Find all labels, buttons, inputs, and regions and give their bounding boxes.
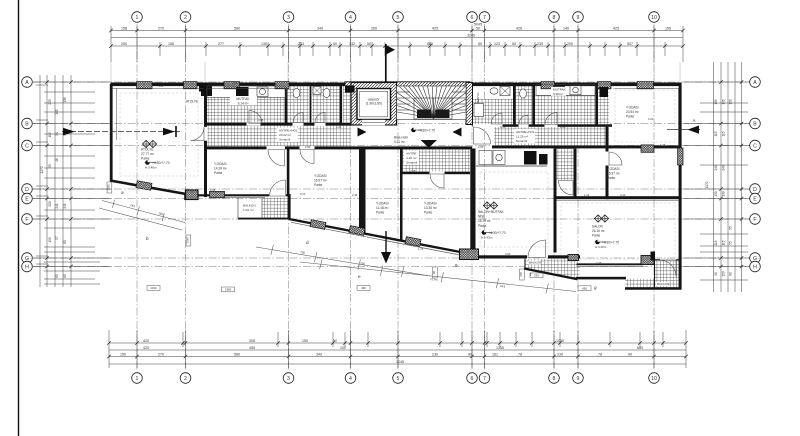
svg-text:C: C [25,143,29,149]
svg-text:94: 94 [55,132,59,136]
svg-text:Seramik: Seramik [406,161,418,165]
svg-text:115: 115 [48,132,52,137]
svg-text:4.90: 4.90 [505,252,511,256]
svg-text:235: 235 [48,99,52,105]
svg-text:3: 3 [287,15,290,21]
svg-text:5045: 5045 [474,23,482,27]
svg-text:+4.30/+7.70: +4.30/+7.70 [489,231,506,235]
svg-text:200: 200 [48,201,52,207]
svg-text:7: 7 [483,376,486,382]
svg-text:165: 165 [55,109,59,115]
svg-text:A: A [25,80,29,86]
svg-text:1470: 1470 [40,166,44,173]
svg-text:50: 50 [333,42,337,46]
svg-text:685: 685 [637,346,643,350]
svg-text:Y.ODASI: Y.ODASI [424,202,437,206]
svg-text:60: 60 [63,274,67,278]
svg-text:270: 270 [158,352,164,356]
svg-text:1170: 1170 [705,181,709,188]
svg-text:ANTRE: ANTRE [406,152,417,156]
svg-text:55: 55 [48,164,52,168]
svg-text:+4.30/+7.70: +4.30/+7.70 [152,161,170,165]
svg-text:1.75: 1.75 [418,247,424,251]
svg-text:16.97 m²: 16.97 m² [314,179,327,183]
svg-text:115: 115 [714,131,718,136]
svg-text:b: b [146,236,149,241]
svg-text:SALON+MUTFAK: SALON+MUTFAK [478,210,504,214]
svg-text:D: D [25,187,29,193]
svg-text:16.15 m²: 16.15 m² [478,219,491,223]
svg-text:50: 50 [476,26,480,30]
svg-text:2.50: 2.50 [305,145,311,149]
svg-text:3245: 3245 [467,33,475,37]
svg-text:Y.ODASI: Y.ODASI [607,167,620,171]
svg-text:150: 150 [48,237,52,243]
svg-text:250: 250 [121,42,127,46]
svg-text:Y.ODASI: Y.ODASI [626,106,639,110]
svg-text:BALKON: BALKON [243,204,256,208]
svg-text:MUTFAK: MUTFAK [237,97,251,101]
svg-text:Parke: Parke [314,183,323,187]
svg-text:1355: 1355 [496,346,504,350]
svg-text:161: 161 [492,352,498,356]
svg-text:Parke: Parke [626,115,635,119]
svg-text:1.20: 1.20 [336,125,342,129]
svg-text:2.80: 2.80 [430,81,436,85]
svg-text:Parke: Parke [478,224,487,228]
svg-text:H:3.40m: H:3.40m [145,166,157,170]
svg-text:8: 8 [553,15,556,21]
svg-text:2.10: 2.10 [522,145,528,149]
svg-text:ATÖLYE: ATÖLYE [186,100,198,104]
svg-text:50: 50 [512,42,516,46]
svg-text:9.31 m²: 9.31 m² [394,140,405,144]
svg-text:H: H [25,264,29,270]
svg-text:277: 277 [218,42,224,46]
svg-text:MUTFAK: MUTFAK [553,88,566,92]
svg-text:3: 3 [287,376,290,382]
svg-text:158: 158 [121,26,127,30]
svg-text:230: 230 [432,352,438,356]
svg-text:4.28 m²: 4.28 m² [406,156,417,160]
svg-text:308: 308 [249,339,255,343]
svg-text:140: 140 [563,26,569,30]
svg-text:9.14 m²: 9.14 m² [238,102,249,106]
svg-text:159: 159 [665,26,671,30]
svg-text:130: 130 [729,99,733,105]
svg-text:Parke: Parke [214,171,223,175]
svg-text:a: a [121,190,124,195]
svg-text:2: 2 [184,15,187,21]
svg-text:425: 425 [432,26,438,30]
svg-text:1: 1 [136,15,139,21]
svg-text:5: 5 [397,376,400,382]
svg-text:150: 150 [302,339,308,343]
svg-text:60: 60 [63,240,67,244]
svg-text:d: d [306,240,309,245]
svg-text:14.39 m²: 14.39 m² [214,167,227,171]
svg-text:ANTRE+HOL: ANTRE+HOL [516,130,535,134]
svg-text:115: 115 [722,131,726,136]
svg-text:2.45: 2.45 [352,193,358,197]
svg-text:H:3.40m: H:3.40m [481,235,493,239]
svg-text:3.10: 3.10 [300,192,306,196]
svg-text:F: F [25,217,28,223]
svg-text:1.35: 1.35 [660,143,666,147]
svg-text:B: B [753,121,757,127]
svg-text:55: 55 [729,226,733,230]
svg-text:g: g [594,285,597,290]
svg-text:90: 90 [628,352,632,356]
svg-text:+4.30/+7.70: +4.30/+7.70 [602,240,619,244]
svg-text:7: 7 [483,15,486,21]
svg-text:136: 136 [63,97,67,103]
svg-text:D: D [753,187,757,193]
svg-text:46: 46 [55,158,59,162]
svg-text:57: 57 [55,236,59,240]
svg-text:60: 60 [55,274,59,278]
svg-text:26.16 m²: 26.16 m² [592,229,605,233]
svg-text:5: 5 [397,15,400,21]
svg-text:135: 135 [714,99,718,105]
svg-text:Seramik: Seramik [516,139,528,143]
svg-text:349: 349 [316,352,322,356]
svg-text:4: 4 [349,15,352,21]
svg-text:3.05: 3.05 [258,118,264,122]
svg-text:90: 90 [432,271,436,275]
svg-text:9: 9 [455,263,458,268]
svg-text:1050: 1050 [556,339,564,343]
svg-text:156: 156 [168,42,174,46]
svg-text:200: 200 [567,42,573,46]
svg-text:23.54 m²: 23.54 m² [626,110,639,114]
svg-text:115: 115 [714,240,718,245]
svg-text:Parke: Parke [141,157,150,161]
svg-text:239: 239 [537,42,543,46]
svg-text:1.10: 1.10 [584,193,590,197]
svg-text:150: 150 [120,352,126,356]
svg-text:130: 130 [714,191,718,197]
svg-text:2: 2 [184,376,187,382]
svg-text:6: 6 [471,15,474,21]
svg-text:9: 9 [577,376,580,382]
svg-text:241: 241 [63,203,67,209]
svg-text:+4.30/+7.70: +4.30/+7.70 [418,128,435,132]
svg-text:H:3.40m: H:3.40m [595,245,607,249]
svg-text:Parke: Parke [592,234,601,238]
svg-text:E: E [753,196,757,202]
svg-text:H: H [753,264,757,270]
svg-text:3245: 3245 [396,360,404,364]
svg-text:BANYO: BANYO [476,92,480,103]
svg-text:855: 855 [427,42,433,46]
svg-text:425: 425 [613,26,619,30]
svg-text:420: 420 [143,346,149,350]
svg-text:135: 135 [722,99,726,105]
svg-text:ANTRE+HOL: ANTRE+HOL [279,129,298,133]
svg-text:Parke: Parke [376,211,385,215]
svg-text:9: 9 [577,15,580,21]
svg-text:Y.ODASI: Y.ODASI [376,202,389,206]
svg-text:10.35 m²: 10.35 m² [424,206,437,210]
svg-text:90: 90 [468,352,472,356]
svg-text:2.60: 2.60 [232,81,238,85]
svg-text:2.35: 2.35 [410,169,416,173]
svg-text:Parke: Parke [607,176,616,180]
svg-text:580: 580 [234,26,240,30]
svg-text:132: 132 [349,42,355,46]
svg-text:217m: 217m [430,277,438,282]
svg-text:240: 240 [722,165,726,171]
svg-text:4.05: 4.05 [158,84,164,88]
svg-text:2.90: 2.90 [478,145,484,149]
svg-text:230: 230 [534,274,539,278]
svg-text:Bina Holü: Bina Holü [394,136,408,140]
svg-text:1.95: 1.95 [210,188,216,192]
svg-text:3.30: 3.30 [222,145,228,149]
svg-text:1335: 1335 [185,237,189,244]
svg-text:11.48 m²: 11.48 m² [376,206,388,210]
svg-text:ATÖLYE: ATÖLYE [141,148,154,152]
svg-text:3.20: 3.20 [648,117,654,121]
svg-text:507: 507 [627,42,633,46]
svg-text:436: 436 [582,287,587,291]
svg-text:A: A [753,80,757,86]
svg-text:3.45: 3.45 [500,125,506,129]
svg-text:55: 55 [729,241,733,245]
svg-text:BALKON: BALKON [657,282,669,286]
svg-text:1: 1 [136,376,139,382]
svg-text:3.55: 3.55 [630,81,636,85]
svg-text:90: 90 [714,272,718,276]
svg-text:(1.90x1.80): (1.90x1.80) [366,102,382,106]
svg-text:115: 115 [722,240,726,245]
svg-text:C: C [753,143,757,149]
svg-text:4: 4 [349,376,352,382]
svg-text:1360: 1360 [225,288,232,292]
svg-text:1.95: 1.95 [560,125,566,129]
svg-text:420: 420 [143,339,149,343]
svg-text:SALON: SALON [592,225,604,229]
svg-text:1310: 1310 [150,286,157,290]
svg-text:78: 78 [518,352,522,356]
svg-text:3.35: 3.35 [596,261,602,265]
svg-text:4.10: 4.10 [620,193,626,197]
svg-text:BALKON: BALKON [529,261,541,265]
svg-text:10: 10 [651,376,657,382]
svg-text:426: 426 [516,26,522,30]
svg-text:8: 8 [553,376,556,382]
svg-text:436: 436 [361,286,366,290]
svg-text:Y.ODASI: Y.ODASI [314,174,327,178]
svg-text:1335: 1335 [106,184,110,191]
svg-text:243: 243 [500,284,506,289]
svg-text:150: 150 [722,271,726,277]
svg-text:240: 240 [714,165,718,171]
svg-text:270: 270 [158,26,164,30]
svg-text:50: 50 [478,42,482,46]
svg-text:e: e [358,274,361,279]
svg-text:A: A [693,118,696,123]
svg-text:241: 241 [55,203,59,209]
svg-text:235: 235 [519,272,523,277]
svg-text:15.37 m²: 15.37 m² [607,172,620,176]
svg-text:60: 60 [729,272,733,276]
svg-text:580: 580 [234,352,240,356]
svg-text:123: 123 [494,42,500,46]
svg-text:6: 6 [471,376,474,382]
svg-text:1.04 m²: 1.04 m² [243,208,254,212]
svg-text:NİŞİ: NİŞİ [478,214,484,219]
svg-text:230: 230 [557,352,563,356]
svg-text:E: E [25,196,29,202]
svg-text:6.90m²: 6.90m² [553,92,563,96]
svg-text:130: 130 [722,191,726,197]
svg-text:78: 78 [598,352,602,356]
svg-text:1.90: 1.90 [376,81,382,85]
svg-text:10: 10 [651,15,657,21]
svg-text:100: 100 [340,346,346,350]
svg-text:F: F [753,217,756,223]
svg-text:B: B [25,121,29,127]
svg-text:Parke: Parke [424,211,433,215]
svg-text:349: 349 [317,26,323,30]
svg-text:27.77 m²: 27.77 m² [141,152,155,156]
svg-text:Seramik: Seramik [279,138,291,142]
svg-text:Y.ODASI: Y.ODASI [214,162,227,166]
svg-text:455: 455 [249,346,255,350]
svg-text:50: 50 [367,42,371,46]
svg-text:20.22 m²: 20.22 m² [279,133,291,137]
svg-text:260: 260 [371,26,377,30]
svg-text:11.25 m²: 11.25 m² [516,135,528,139]
svg-text:130: 130 [261,42,267,46]
